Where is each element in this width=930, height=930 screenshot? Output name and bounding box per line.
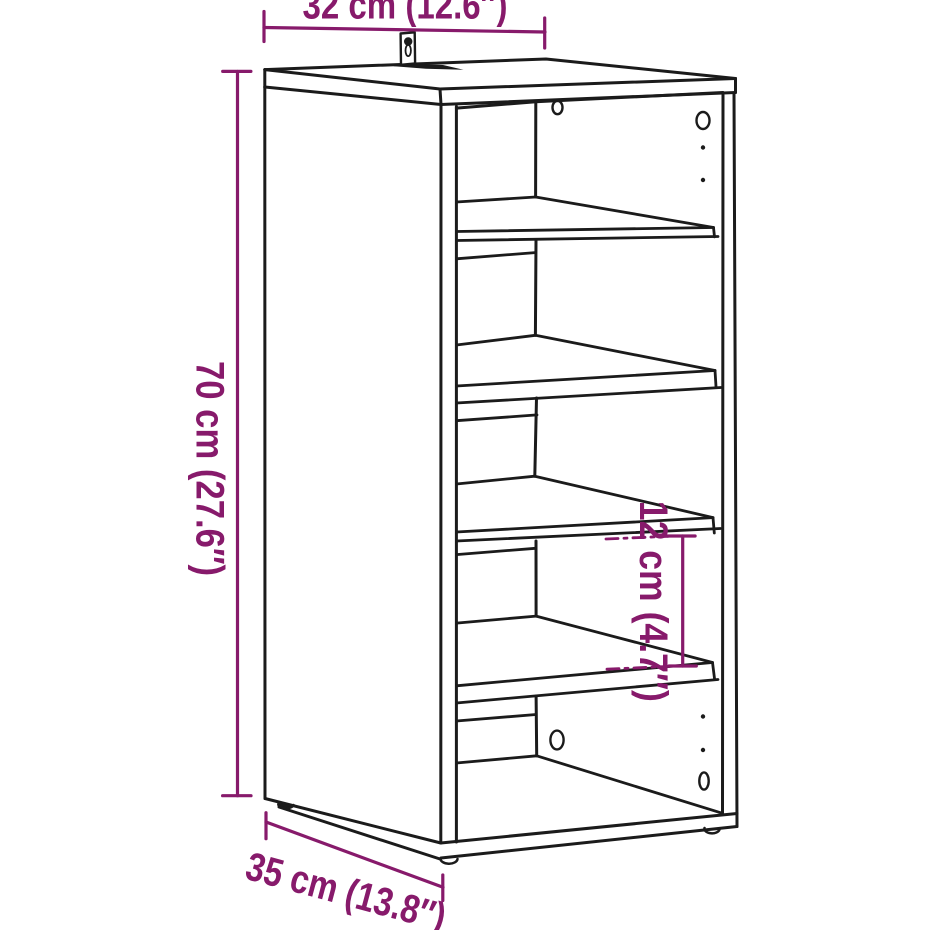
svg-text:35 cm (13.8″): 35 cm (13.8″)	[241, 844, 450, 930]
svg-text:70 cm (27.6″): 70 cm (27.6″)	[188, 361, 232, 576]
svg-text:32 cm (12.6″): 32 cm (12.6″)	[303, 0, 508, 28]
svg-text:12 cm (4.7″): 12 cm (4.7″)	[631, 501, 675, 702]
